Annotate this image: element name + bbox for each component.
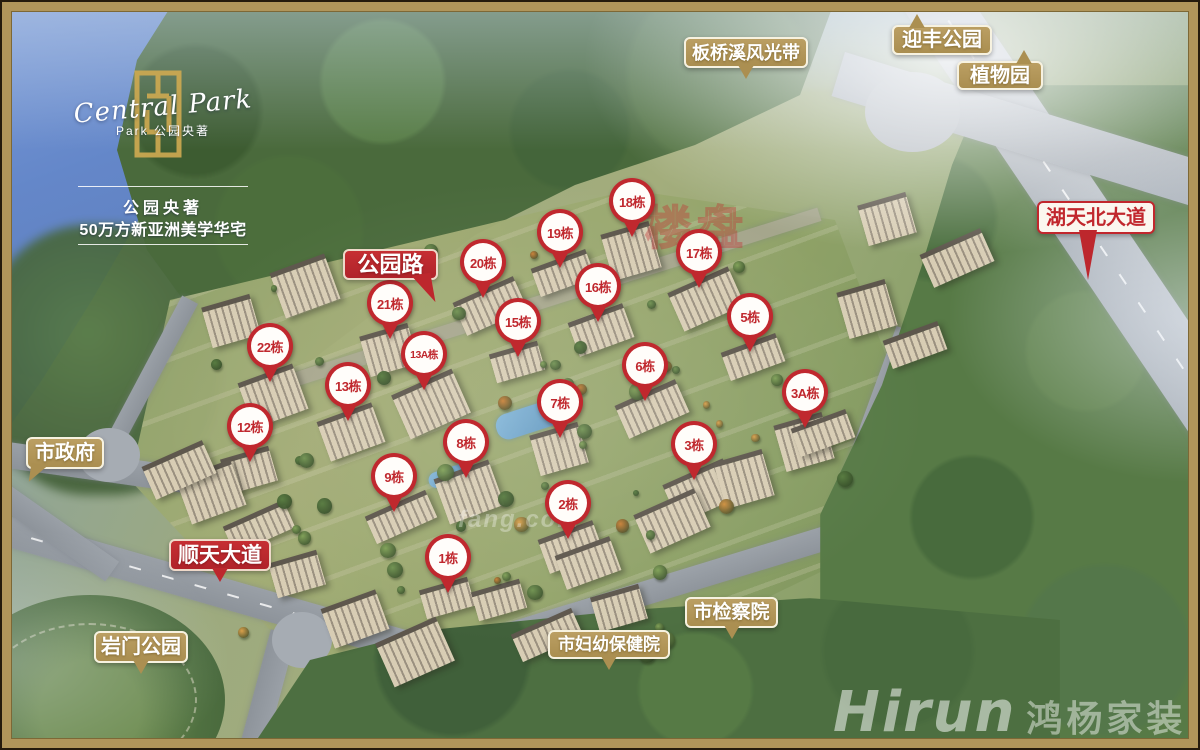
building-pin-3: 3栋 [671, 421, 717, 480]
building-pin-21: 21栋 [367, 280, 413, 339]
corner-watermark-latin: Hirun [833, 680, 1016, 738]
building-pin-2: 2栋 [545, 480, 591, 539]
building-pin-8: 8栋 [443, 419, 489, 478]
building-pin-5: 5栋 [727, 293, 773, 352]
place-label-4: 市政府 [26, 437, 104, 469]
brand-divider-bottom [78, 244, 248, 245]
building-pin-13A: 13A栋 [401, 331, 447, 390]
place-label-6: 市妇幼保健院 [548, 630, 670, 659]
aerial-masterplan-poster: 楼盘 fang.com Central Park Park 公园央著 公园央著 … [0, 0, 1200, 750]
building-pin-20: 20栋 [460, 239, 506, 298]
building-pin-16: 16栋 [575, 263, 621, 322]
corner-watermark-chinese: 鸿杨家装 [1026, 698, 1186, 738]
building-pin-15: 15栋 [495, 298, 541, 357]
building-pin-18: 18栋 [609, 178, 655, 237]
place-label-3: 植物园 [957, 61, 1043, 90]
building-pin-13: 13栋 [325, 362, 371, 421]
building-pin-19: 19栋 [537, 209, 583, 268]
building-pin-12: 12栋 [227, 403, 273, 462]
building-pin-6: 6栋 [622, 342, 668, 401]
building-pin-7: 7栋 [537, 379, 583, 438]
scene-clip: 楼盘 fang.com Central Park Park 公园央著 公园央著 … [12, 12, 1188, 738]
brand-logo-block: Central Park Park 公园央著 公园央著 50万方新亚洲美学华宅 [78, 58, 248, 258]
brand-subscript: Park 公园央著 [78, 122, 248, 139]
building-pin-9: 9栋 [371, 453, 417, 512]
road-label-1: 公园路 [343, 249, 438, 280]
place-label-7: 市检察院 [685, 597, 778, 628]
place-label-2: 迎丰公园 [892, 25, 992, 55]
project-tagline: 50万方新亚洲美学华宅 [66, 216, 260, 240]
building-pin-17: 17栋 [676, 229, 722, 288]
world: 楼盘 fang.com Central Park Park 公园央著 公园央著 … [12, 12, 1188, 738]
road-label-3: 湖天北大道 [1037, 201, 1155, 234]
brand-divider-top [78, 186, 248, 187]
corner-watermark: Hirun鸿杨家装 [833, 680, 1186, 738]
building-pin-1: 1栋 [425, 534, 471, 593]
road-label-2: 顺天大道 [169, 539, 271, 571]
building-pin-22: 22栋 [247, 323, 293, 382]
place-label-1: 板桥溪风光带 [684, 37, 808, 68]
place-label-5: 岩门公园 [94, 631, 188, 663]
project-name: 公园央著 [78, 194, 248, 218]
building-pin-3A: 3A栋 [782, 369, 828, 428]
